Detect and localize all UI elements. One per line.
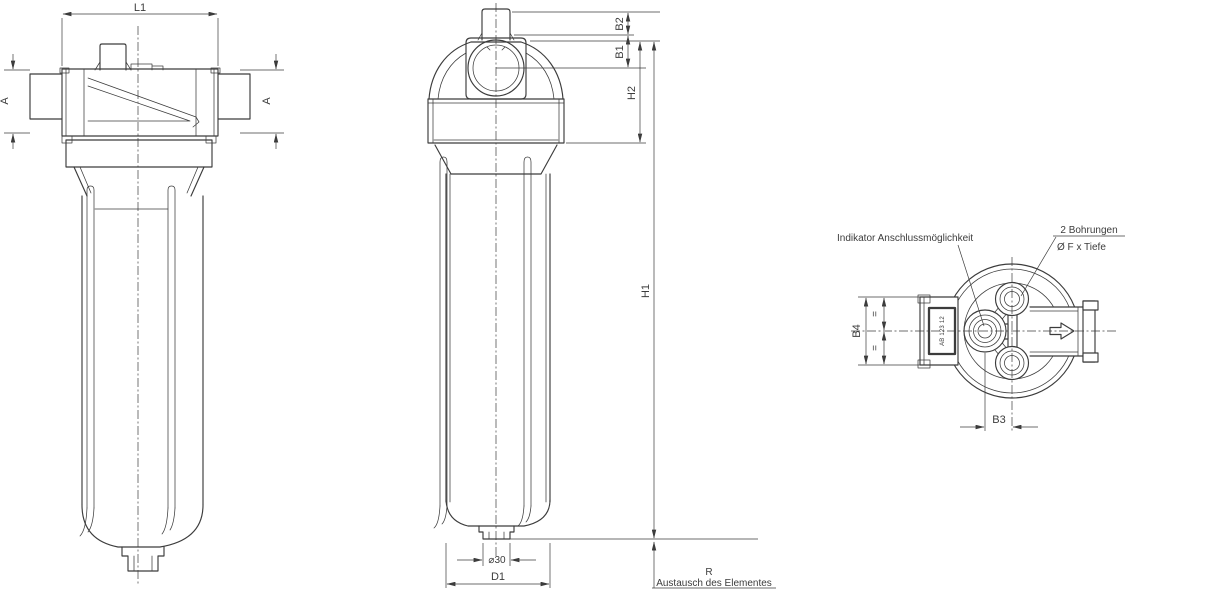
equal-mark-top: = bbox=[870, 311, 881, 317]
side-view-clamp-ring bbox=[62, 136, 216, 167]
side-view: L1 A A bbox=[0, 2, 284, 586]
dim-label-b2: B2 bbox=[614, 17, 626, 30]
top-view-outlet-port bbox=[1030, 301, 1098, 362]
dim-label-d1: D1 bbox=[491, 571, 505, 583]
note-element-replacement: Austausch des Elementes bbox=[656, 578, 772, 589]
indicator-label-text: Indikator Anschlussmöglichkeit bbox=[837, 233, 973, 244]
label-indicator-connection: Indikator Anschlussmöglichkeit bbox=[837, 233, 984, 326]
bolt-holes-label-line2: Ø F x Tiefe bbox=[1057, 242, 1106, 253]
side-view-bowl bbox=[74, 167, 204, 571]
front-view: B2 B1 H2 H1 ⌀30 D1 bbox=[428, 3, 776, 589]
dimension-l1: L1 bbox=[62, 2, 218, 66]
label-bolt-holes: 2 Bohrungen Ø F x Tiefe bbox=[1021, 225, 1125, 296]
bolt-holes-label-line1: 2 Bohrungen bbox=[1060, 225, 1117, 236]
dimension-r-element-removal: R Austausch des Elementes bbox=[652, 542, 776, 589]
front-view-bowl bbox=[434, 145, 557, 539]
dim-label-drain: ⌀30 bbox=[488, 555, 506, 566]
dim-label-b1: B1 bbox=[614, 45, 626, 58]
side-view-filter-head bbox=[30, 44, 250, 136]
technical-drawing-canvas: L1 A A bbox=[0, 0, 1214, 592]
dim-label-l1: L1 bbox=[134, 2, 146, 14]
top-view-inlet-port: AB 123 12 bbox=[918, 295, 958, 368]
dimension-h1: H1 bbox=[640, 42, 654, 538]
dimension-drain-diameter: ⌀30 bbox=[457, 543, 536, 566]
top-view: AB 123 12 Indikator Anschlussmöglichkeit… bbox=[837, 225, 1125, 431]
dim-label-a-left: A bbox=[0, 97, 11, 105]
dim-label-b3: B3 bbox=[992, 414, 1005, 426]
dim-label-a-right: A bbox=[261, 97, 273, 105]
technical-drawing-page: L1 A A bbox=[0, 0, 1214, 592]
dim-label-b4: B4 bbox=[851, 324, 863, 337]
dim-label-r: R bbox=[705, 567, 712, 578]
dim-label-h2: H2 bbox=[626, 86, 638, 100]
dim-label-h1: H1 bbox=[640, 284, 652, 298]
equal-mark-bottom: = bbox=[870, 345, 881, 351]
dimension-a-left: A bbox=[0, 54, 30, 149]
dimension-a-right: A bbox=[240, 54, 284, 149]
dimension-b2: B2 bbox=[614, 13, 628, 34]
